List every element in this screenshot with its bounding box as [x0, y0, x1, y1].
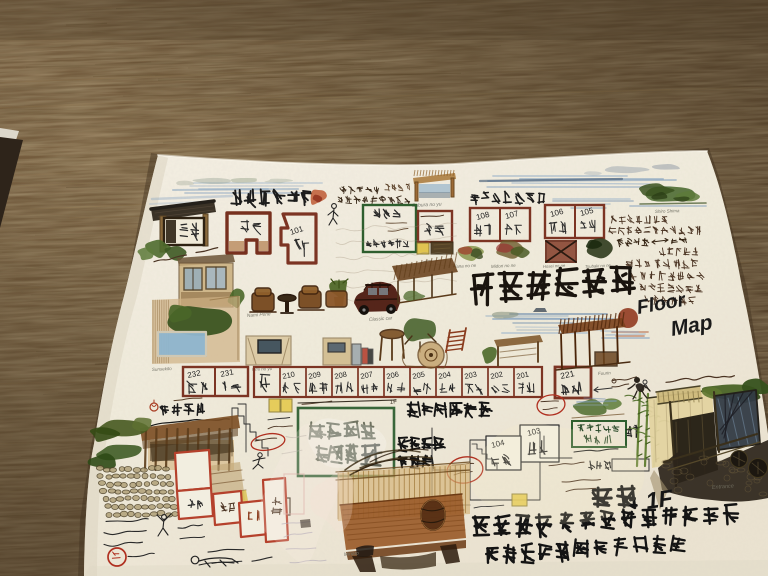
svg-text:Shiro Shima: Shiro Shima	[655, 208, 680, 214]
svg-text:1F: 1F	[390, 399, 398, 406]
svg-text:Sunsekito: Sunsekito	[152, 366, 172, 372]
svg-text:Fuurin: Fuurin	[598, 370, 611, 376]
